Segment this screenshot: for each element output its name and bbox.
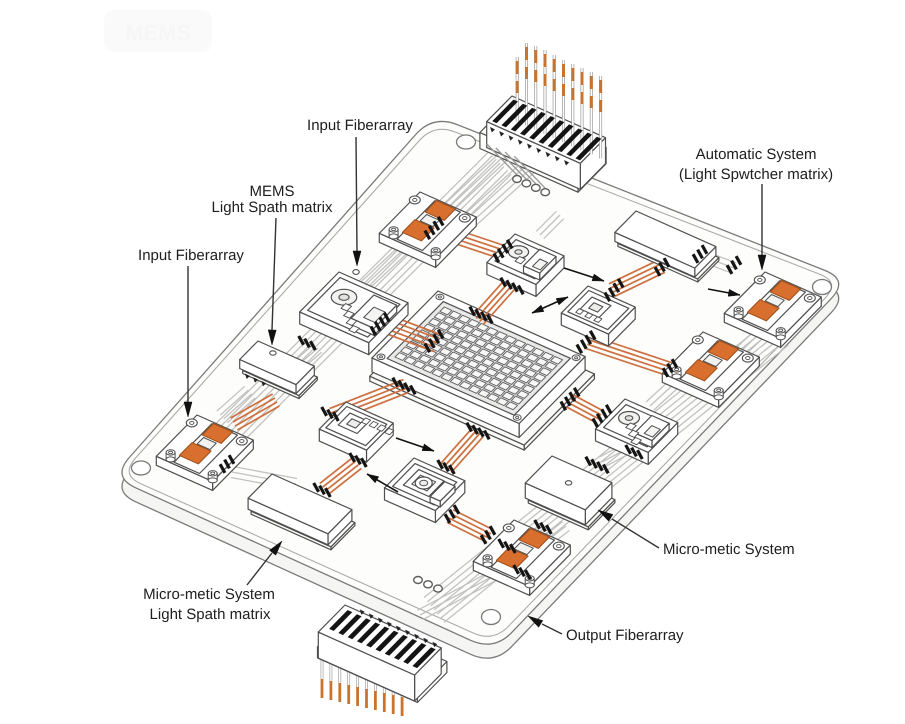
svg-text:(Light Spwtcher matrix): (Light Spwtcher matrix) — [679, 166, 833, 183]
svg-text:Input Fiberarray: Input Fiberarray — [138, 247, 244, 264]
svg-text:Light Spath matrix: Light Spath matrix — [212, 199, 333, 216]
svg-text:Micro-metic System: Micro-metic System — [143, 586, 275, 603]
svg-text:Output Fiberarray: Output Fiberarray — [566, 627, 684, 644]
svg-text:MEMS: MEMS — [125, 20, 191, 45]
svg-text:Automatic System: Automatic System — [696, 146, 817, 163]
svg-text:MEMS: MEMS — [250, 183, 295, 200]
svg-text:Light Spath matrix: Light Spath matrix — [150, 606, 271, 623]
svg-text:Micro-metic System: Micro-metic System — [663, 541, 795, 558]
svg-text:Input Fiberarray: Input Fiberarray — [307, 117, 413, 134]
